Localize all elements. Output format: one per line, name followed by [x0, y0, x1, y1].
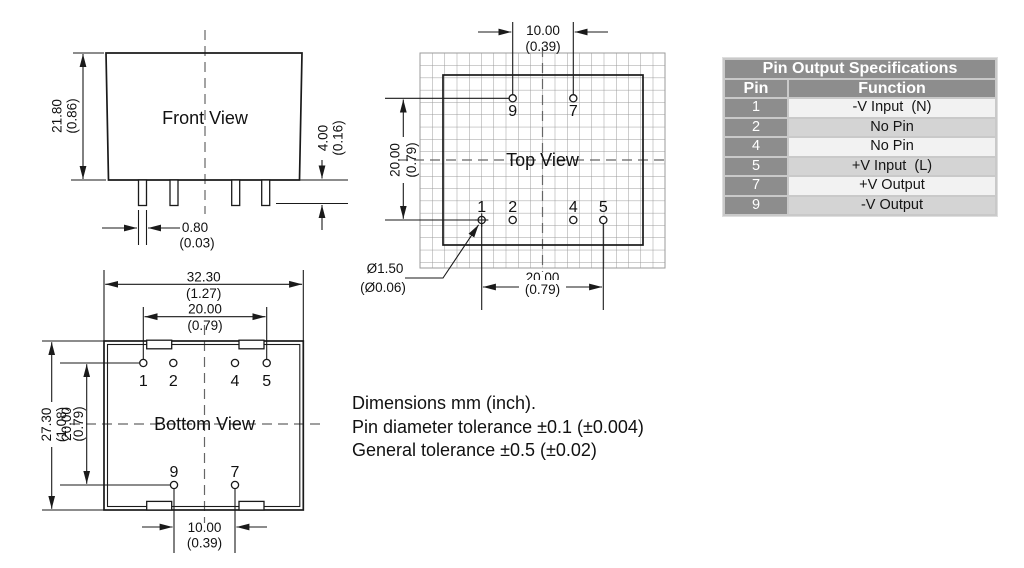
bottom-height-mm: 27.30	[39, 408, 54, 442]
top-pin-9	[509, 95, 516, 102]
pin-number: 2	[725, 119, 787, 137]
table-title-row: Pin Output Specifications	[725, 60, 995, 78]
case-notch	[147, 501, 172, 510]
front-pin	[232, 180, 240, 206]
pin-number: 4	[725, 138, 787, 156]
bottom-pin-label-1: 1	[139, 373, 148, 390]
pin-function: -V Input (N)	[789, 99, 995, 117]
case-notch	[239, 501, 264, 510]
top-botspan-in: (0.79)	[525, 282, 560, 297]
bottom-leftspan-in: (0.79)	[71, 406, 86, 441]
bottom-view-title: Bottom View	[154, 414, 256, 434]
front-pinw-in: (0.03)	[179, 236, 214, 251]
top-view-title: Top View	[506, 150, 580, 170]
technical-drawing-page: Front View 21.80 (0.86) 4.00 (0.16) 0.80…	[0, 0, 1024, 568]
note-units: Dimensions mm (inch).	[352, 392, 644, 416]
top-pin-label-9: 9	[508, 103, 517, 120]
note-general-tolerance: General tolerance ±0.5 (±0.02)	[352, 439, 644, 463]
bottom-pin-label-9: 9	[170, 464, 179, 481]
top-pitch-in: (0.39)	[525, 39, 560, 54]
pin-function: No Pin	[789, 119, 995, 137]
table-row: 4 No Pin	[725, 138, 995, 156]
bottom-pin-7	[231, 481, 238, 488]
top-pin-5	[600, 216, 607, 223]
front-height-mm: 21.80	[50, 99, 65, 133]
table-row: 5 +V Input (L)	[725, 158, 995, 176]
bottom-pin-4	[231, 359, 238, 366]
front-pin	[139, 180, 147, 206]
table-row: 1 -V Input (N)	[725, 99, 995, 117]
case-notch	[147, 340, 172, 349]
pin-output-spec-table: Pin Output Specifications Pin Function 1…	[722, 57, 998, 217]
bottom-pin-label-4: 4	[231, 373, 240, 390]
top-rowspan-mm: 20.00	[388, 143, 403, 177]
pin-function: +V Output	[789, 177, 995, 195]
bottom-pin-2	[170, 359, 177, 366]
top-pin-label-1: 1	[477, 199, 486, 216]
pin-function: No Pin	[789, 138, 995, 156]
case-notch	[239, 340, 264, 349]
note-pin-tolerance: Pin diameter tolerance ±0.1 (±0.004)	[352, 416, 644, 440]
bottom-topspan-mm: 20.00	[188, 302, 222, 317]
bottom-view-drawing: 1 2 4 5 9 7 Bottom View 32.30 (1.27) 20.…	[20, 255, 360, 568]
bottom-width-mm: 32.30	[187, 270, 221, 285]
front-view-drawing: Front View 21.80 (0.86) 4.00 (0.16) 0.80…	[30, 10, 360, 260]
pin-number: 7	[725, 177, 787, 195]
top-view-drawing: 9 7 1 2 4 5 Top View 10.00 (0.39) 20.00 …	[350, 10, 690, 320]
pin-dia-mm: Ø1.50	[367, 261, 404, 276]
pin-number: 1	[725, 99, 787, 117]
table-title: Pin Output Specifications	[725, 60, 995, 78]
front-pin	[170, 180, 178, 206]
bottom-pin-label-2: 2	[169, 373, 178, 390]
front-pin	[262, 180, 270, 206]
pin-function: -V Output	[789, 197, 995, 215]
table-row: 2 No Pin	[725, 119, 995, 137]
front-pinlen-mm: 4.00	[316, 125, 331, 151]
top-pin-2	[509, 216, 516, 223]
front-pinw-mm: 0.80	[182, 220, 208, 235]
front-view-title: Front View	[162, 108, 249, 128]
tolerance-notes: Dimensions mm (inch). Pin diameter toler…	[352, 392, 644, 463]
front-height-in: (0.86)	[65, 98, 80, 133]
top-pin-label-5: 5	[599, 199, 608, 216]
table-header-row: Pin Function	[725, 80, 995, 98]
bottom-pin-5	[263, 359, 270, 366]
bottom-pin-label-5: 5	[262, 373, 271, 390]
table-row: 7 +V Output	[725, 177, 995, 195]
bottom-width-in: (1.27)	[186, 286, 221, 301]
top-pin-7	[570, 95, 577, 102]
bottom-topspan-in: (0.79)	[187, 318, 222, 333]
col-header-pin: Pin	[725, 80, 787, 98]
bottom-pin-9	[170, 481, 177, 488]
pin-dia-in: (Ø0.06)	[360, 280, 406, 295]
pin-number: 5	[725, 158, 787, 176]
bottom-pin-1	[140, 359, 147, 366]
top-pitch-mm: 10.00	[526, 23, 560, 38]
top-pin-label-7: 7	[569, 103, 578, 120]
top-pin-label-2: 2	[508, 199, 517, 216]
front-pinlen-in: (0.16)	[331, 120, 346, 155]
pin-spec-table-wrap: Pin Output Specifications Pin Function 1…	[722, 57, 998, 217]
top-rowspan-in: (0.79)	[404, 142, 419, 177]
top-pin-label-4: 4	[569, 199, 578, 216]
bottom-pitch-mm: 10.00	[188, 520, 222, 535]
top-pin-4	[570, 216, 577, 223]
bottom-pin-label-7: 7	[231, 464, 240, 481]
pin-number: 9	[725, 197, 787, 215]
pin-function: +V Input (L)	[789, 158, 995, 176]
table-row: 9 -V Output	[725, 197, 995, 215]
bottom-pitch-in: (0.39)	[187, 536, 222, 551]
col-header-function: Function	[789, 80, 995, 98]
